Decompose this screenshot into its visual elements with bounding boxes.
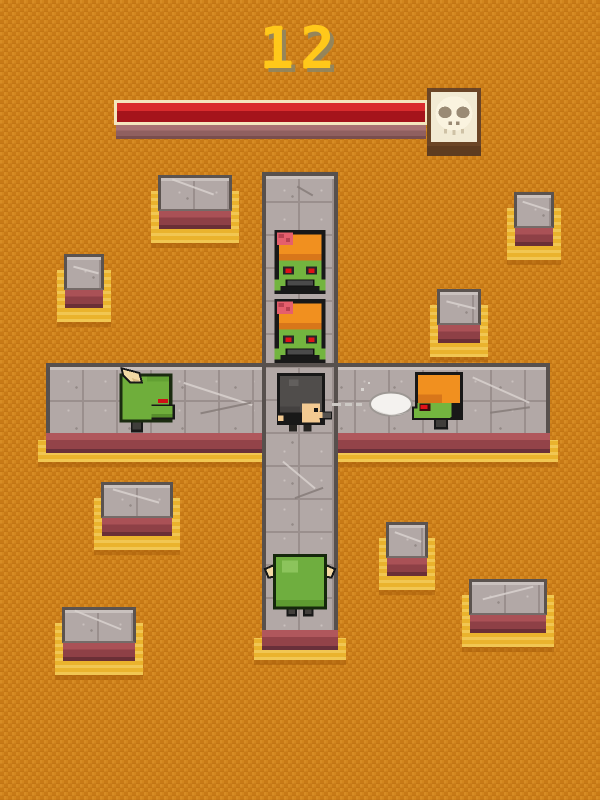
block-side: [159, 211, 231, 229]
stone-block: [62, 607, 136, 661]
block-side: [102, 518, 172, 536]
corridor-red-base-vertical: [262, 630, 338, 650]
crack-line: [395, 531, 422, 542]
crack-line: [282, 461, 315, 490]
skull-glyph: [431, 92, 477, 142]
stone-block: [101, 482, 173, 536]
skull-icon: [427, 88, 481, 146]
crack-line: [200, 402, 251, 415]
block-side: [63, 643, 135, 661]
stone-block: [386, 522, 428, 576]
crack-line: [483, 586, 534, 601]
enemy-zombie-left: [409, 366, 473, 434]
block-top: [62, 607, 136, 643]
game-viewport[interactable]: 12: [0, 0, 600, 800]
block-side: [438, 325, 480, 343]
crack-line: [490, 406, 530, 414]
block-side: [387, 558, 427, 576]
crack-line: [446, 300, 476, 309]
stone-block: [64, 254, 104, 308]
crack-line: [522, 201, 549, 212]
block-top: [437, 289, 481, 325]
crack-line: [74, 610, 121, 631]
stone-block: [158, 175, 232, 229]
crack-line: [295, 487, 324, 499]
block-top: [101, 482, 173, 518]
enemy-horned-brute-back: [255, 547, 345, 619]
projectile-bullet: [330, 378, 418, 426]
crack-line: [73, 266, 99, 275]
block-side: [470, 615, 546, 633]
enemy-horned-orc: [112, 367, 182, 435]
block-top: [514, 192, 554, 228]
enemy-zombie-front-1: [266, 230, 334, 298]
enemy-zombie-front-2: [266, 299, 334, 367]
score-display: 12: [0, 14, 600, 82]
crack-line: [297, 186, 314, 197]
stone-block: [437, 289, 481, 343]
crack-line: [172, 179, 214, 196]
crack-line: [472, 376, 529, 403]
block-top: [158, 175, 232, 211]
block-side: [65, 290, 103, 308]
block-side: [515, 228, 553, 246]
crack-line: [113, 488, 160, 503]
block-top: [469, 579, 547, 615]
player-character: [269, 369, 333, 433]
health-bar-base: [116, 125, 426, 139]
health-bar-fill: [114, 100, 428, 125]
stone-block: [514, 192, 554, 246]
health-bar: [114, 100, 428, 142]
block-top: [64, 254, 104, 290]
block-top: [386, 522, 428, 558]
stone-block: [469, 579, 547, 633]
